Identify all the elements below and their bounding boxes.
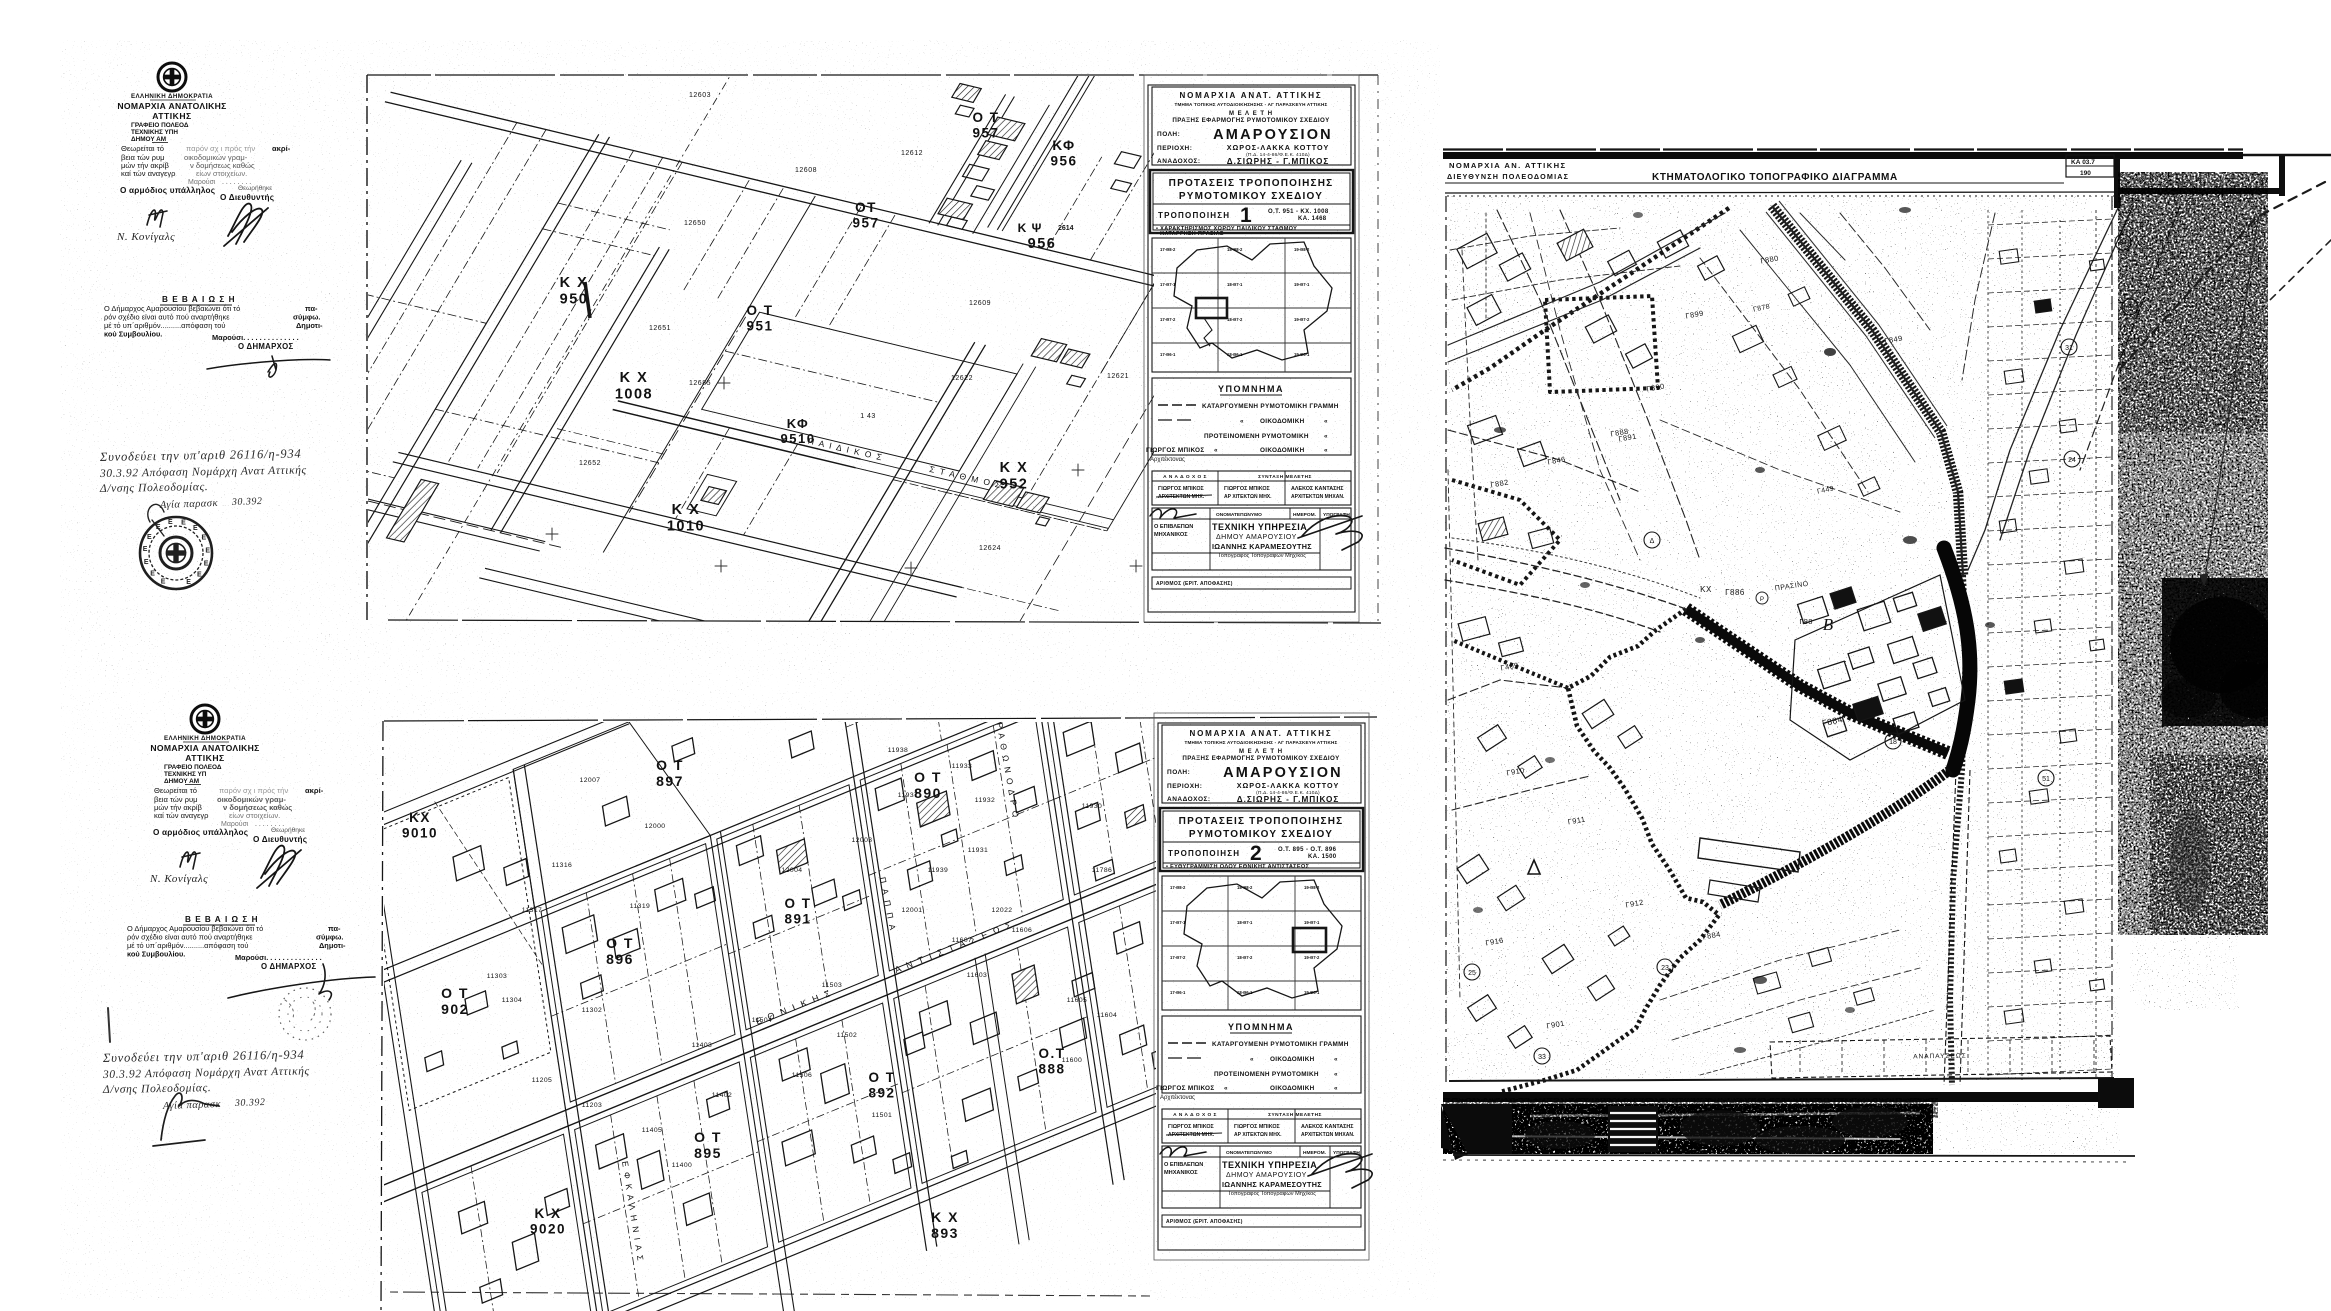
svg-text:24: 24: [2068, 457, 2076, 464]
svg-text:Ρ: Ρ: [1760, 597, 1764, 603]
svg-text:ΚΧ: ΚΧ: [1700, 585, 1712, 594]
svg-text:Γ886: Γ886: [1725, 588, 1745, 597]
svg-text:190: 190: [2080, 170, 2091, 177]
svg-text:ΑΝΑΠΑΥΣΕΩΣ: ΑΝΑΠΑΥΣΕΩΣ: [1913, 1053, 1967, 1061]
svg-text:ΝΟΜΑΡΧΙΑ ΑΝ. ΑΤΤΙΚΗΣ: ΝΟΜΑΡΧΙΑ ΑΝ. ΑΤΤΙΚΗΣ: [1449, 161, 1566, 170]
svg-text:25: 25: [1468, 970, 1476, 977]
svg-text:31: 31: [2065, 345, 2073, 352]
svg-text:51: 51: [2042, 776, 2050, 783]
svg-text:Δ: Δ: [1650, 538, 1655, 545]
svg-text:23: 23: [1661, 965, 1669, 972]
svg-text:ΔΙΕΥΘΥΝΣΗ ΠΟΛΕΟΔΟΜΙΑΣ: ΔΙΕΥΘΥΝΣΗ ΠΟΛΕΟΔΟΜΙΑΣ: [1447, 172, 1569, 181]
svg-text:ΚΑ 03.7: ΚΑ 03.7: [2071, 159, 2095, 166]
svg-text:ΚΤΗΜΑΤΟΛΟΓΙΚΟ ΤΟΠΟΓΡΑΦΙΚΟ ΔΙ: ΚΤΗΜΑΤΟΛΟΓΙΚΟ ΤΟΠΟΓΡΑΦΙΚΟ ΔΙΑΓΡΑΜΜΑ: [1652, 172, 1898, 183]
svg-text:18: 18: [1889, 739, 1897, 746]
svg-text:33: 33: [1538, 1054, 1546, 1061]
